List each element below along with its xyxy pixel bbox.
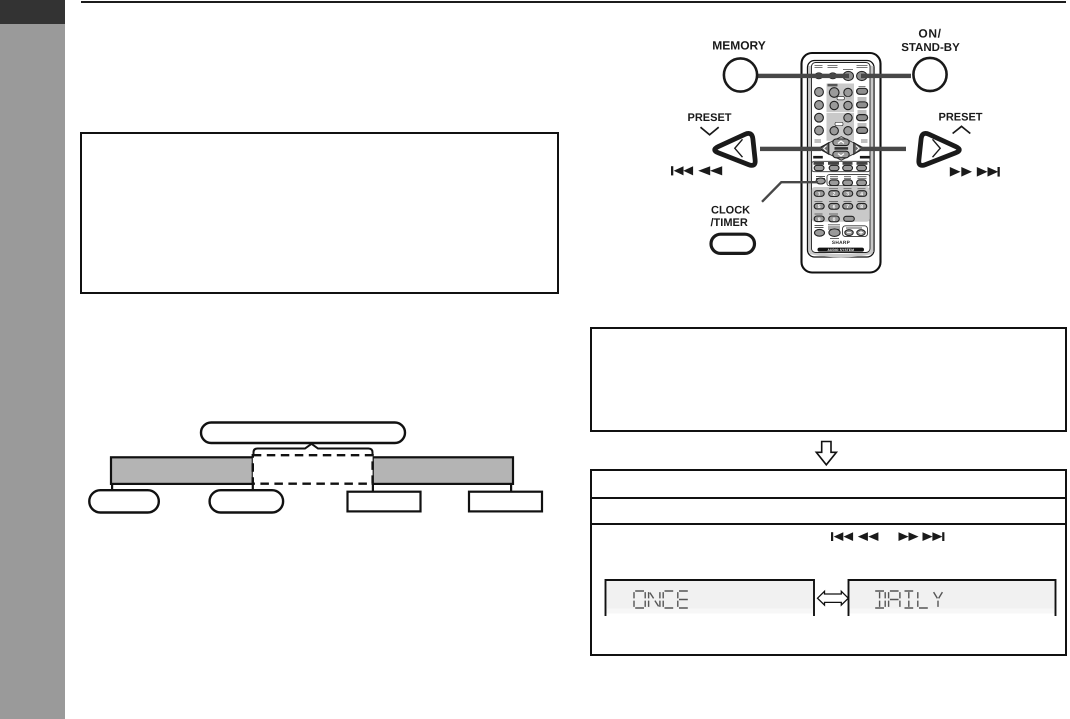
svg-text:5: 5 <box>818 204 821 210</box>
svg-text:AUDIO SYSTEM: AUDIO SYSTEM <box>827 248 854 252</box>
svg-text:CLOCK: CLOCK <box>711 205 750 217</box>
svg-text:2: 2 <box>833 192 836 198</box>
svg-text:7: 7 <box>846 204 849 210</box>
svg-text:MEMORY: MEMORY <box>712 39 766 53</box>
svg-text:3: 3 <box>846 192 849 198</box>
svg-text:PRESET: PRESET <box>938 111 982 123</box>
svg-text:SHARP: SHARP <box>832 240 851 246</box>
svg-text:ON/: ON/ <box>918 27 941 41</box>
svg-text:STAND-BY: STAND-BY <box>901 42 960 54</box>
svg-text:4: 4 <box>860 192 863 198</box>
svg-text:PRESET: PRESET <box>687 112 731 124</box>
svg-text:1: 1 <box>818 192 821 198</box>
svg-text:8: 8 <box>860 204 863 210</box>
svg-text:0: 0 <box>833 217 836 223</box>
svg-text:6: 6 <box>833 204 836 210</box>
svg-text:/TIMER: /TIMER <box>711 217 748 229</box>
svg-text:9: 9 <box>818 217 821 223</box>
